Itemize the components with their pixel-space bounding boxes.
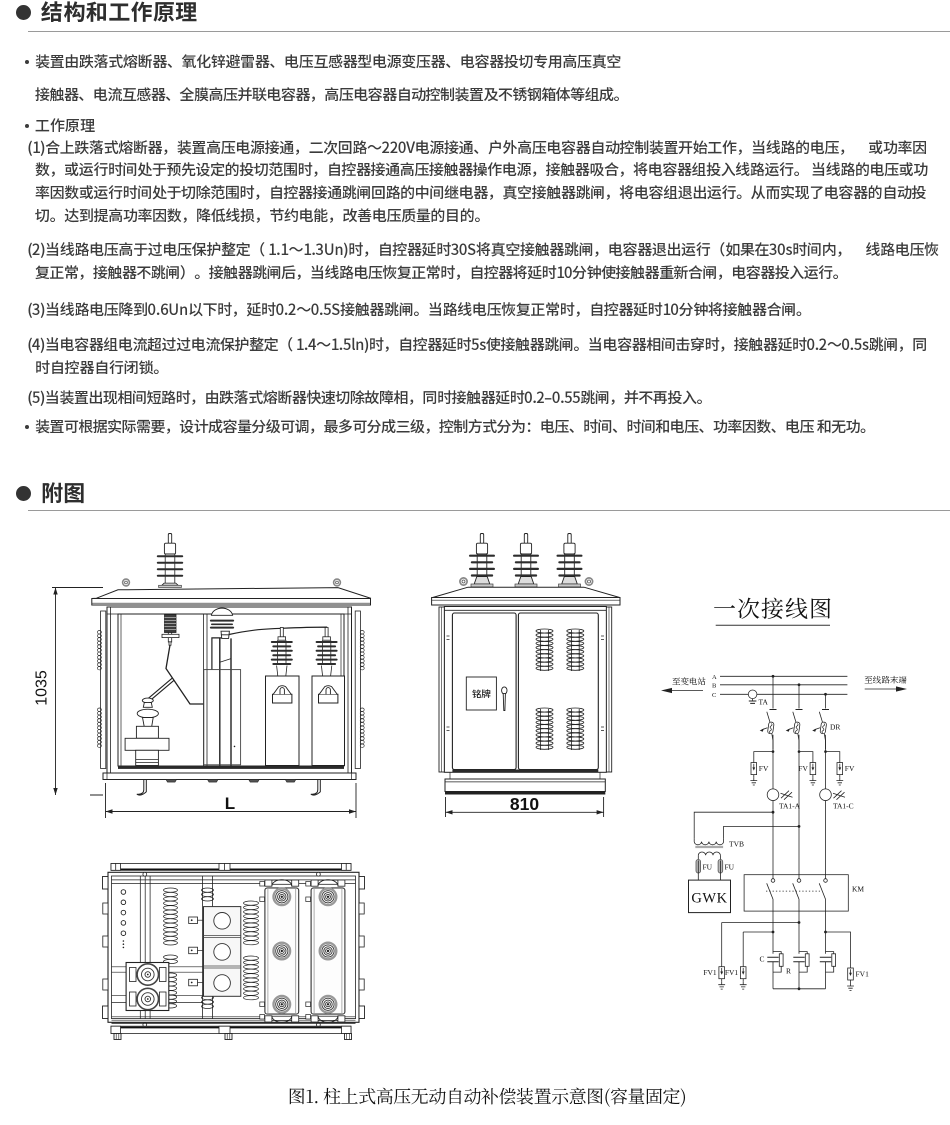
svg-text:C: C xyxy=(712,692,716,699)
svg-text:铭牌: 铭牌 xyxy=(472,687,492,701)
svg-text:810: 810 xyxy=(510,794,539,814)
svg-text:TA1-C: TA1-C xyxy=(833,802,854,811)
svg-text:FU: FU xyxy=(703,863,713,872)
svg-text:FV: FV xyxy=(845,764,855,773)
svg-text:一次接线图: 一次接线图 xyxy=(713,591,833,624)
svg-text:L: L xyxy=(225,794,235,813)
svg-text:TA1-A: TA1-A xyxy=(779,802,801,811)
svg-text:C: C xyxy=(759,955,764,964)
svg-text:1035: 1035 xyxy=(34,670,51,706)
svg-text:TA: TA xyxy=(759,698,769,707)
svg-text:TVB: TVB xyxy=(729,840,744,849)
svg-text:至线路末端: 至线路末端 xyxy=(864,674,907,686)
svg-text:FV1: FV1 xyxy=(725,968,739,977)
svg-text:FV: FV xyxy=(798,764,808,773)
svg-text:GWK: GWK xyxy=(691,891,727,907)
svg-text:FV1: FV1 xyxy=(856,970,870,979)
svg-text:FV: FV xyxy=(759,764,769,773)
svg-text:KM: KM xyxy=(852,885,864,894)
svg-text:DR: DR xyxy=(830,723,840,732)
svg-text:R: R xyxy=(786,967,791,976)
svg-text:B: B xyxy=(712,683,717,690)
svg-text:FV1: FV1 xyxy=(703,968,717,977)
svg-text:至变电站: 至变电站 xyxy=(672,676,707,688)
svg-text:A: A xyxy=(712,674,717,681)
svg-text:FU: FU xyxy=(725,863,735,872)
